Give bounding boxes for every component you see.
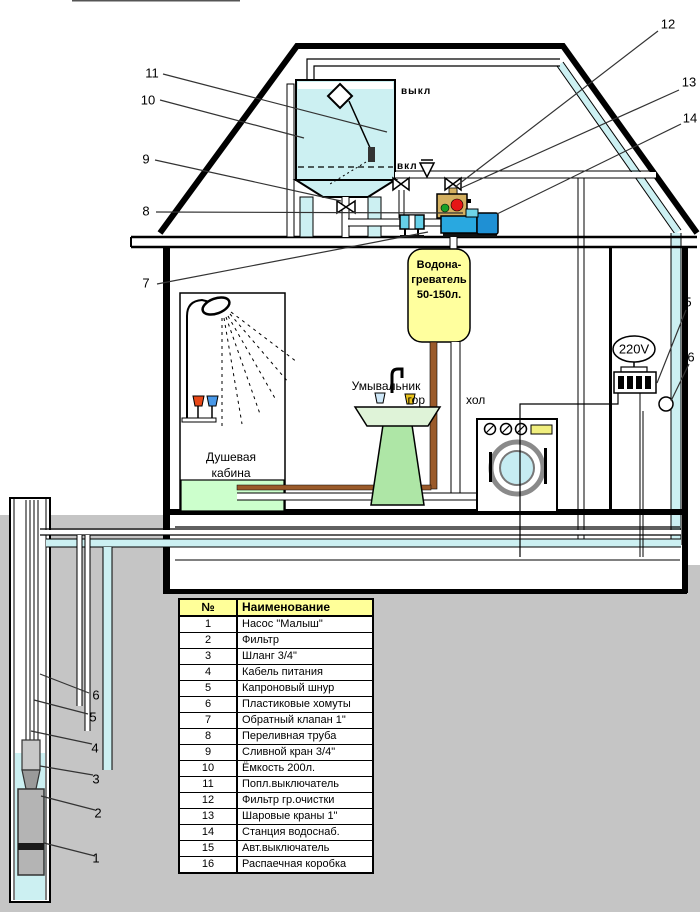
- shower-label: Душевая кабина: [191, 449, 271, 481]
- table-cell-num: 14: [179, 825, 237, 841]
- attic-floor-slab: [131, 237, 697, 247]
- table-cell-num: 12: [179, 793, 237, 809]
- table-row: 14Станция водоснаб.: [179, 825, 373, 841]
- table-cell-name: Кабель питания: [237, 665, 373, 681]
- table-row: 7Обратный клапан 1": [179, 713, 373, 729]
- table-cell-num: 1: [179, 616, 237, 633]
- table-cell-name: Насос "Малыш": [237, 616, 373, 633]
- callout-14: 14: [683, 111, 697, 126]
- table-cell-num: 8: [179, 729, 237, 745]
- table-cell-name: Попл.выключатель: [237, 777, 373, 793]
- parts-header-num: №: [179, 599, 237, 616]
- callout-9: 9: [142, 152, 149, 167]
- scan-edge-line: [72, 0, 240, 2]
- callout-13: 13: [682, 75, 696, 90]
- table-cell-num: 9: [179, 745, 237, 761]
- main-riser-pipe: [578, 177, 584, 545]
- shower-label-line1: Душевая: [191, 449, 271, 465]
- table-row: 13Шаровые краны 1": [179, 809, 373, 825]
- table-cell-name: Распаечная коробка: [237, 857, 373, 874]
- pump-filter: [22, 740, 40, 770]
- heater-label-line3: 50-150л.: [404, 288, 474, 303]
- cold-pipe-vertical: [451, 342, 460, 498]
- table-cell-num: 7: [179, 713, 237, 729]
- water-supply-scheme: 11 10 9 8 7 12 13 14 5 6 6 5 4 3 2 1 вык…: [0, 0, 700, 912]
- table-cell-name: Станция водоснаб.: [237, 825, 373, 841]
- table-cell-num: 4: [179, 665, 237, 681]
- callout-10: 10: [141, 93, 155, 108]
- table-row: 15Авт.выключатель: [179, 841, 373, 857]
- table-cell-num: 5: [179, 681, 237, 697]
- callout-4: 4: [91, 741, 98, 756]
- floor-pipes: [237, 485, 477, 500]
- junction-box: [659, 397, 673, 411]
- table-row: 5Капроновый шнур: [179, 681, 373, 697]
- callout-5: 5: [89, 710, 96, 725]
- table-row: 1Насос "Малыш": [179, 616, 373, 633]
- shower-label-line2: кабина: [191, 465, 271, 481]
- callout-2: 2: [94, 806, 101, 821]
- table-cell-name: Фильтр: [237, 633, 373, 649]
- callout-breaker: 5: [684, 295, 691, 310]
- tank-off-label: выкл: [401, 86, 431, 97]
- callout-11: 11: [145, 66, 159, 81]
- foundation-bottom: [163, 589, 687, 594]
- red-indicator: [451, 199, 463, 211]
- table-cell-num: 16: [179, 857, 237, 874]
- callout-7: 7: [142, 276, 149, 291]
- sink-cold-tap[interactable]: [375, 393, 385, 403]
- table-row: 9Сливной кран 3/4": [179, 745, 373, 761]
- table-cell-name: Пластиковые хомуты: [237, 697, 373, 713]
- green-indicator: [441, 204, 449, 212]
- tank-on-label: вкл: [397, 161, 418, 172]
- table-cell-num: 15: [179, 841, 237, 857]
- voltage-label: 220V: [619, 342, 649, 357]
- callout-8: 8: [142, 204, 149, 219]
- table-cell-name: Ёмкость 200л.: [237, 761, 373, 777]
- table-row: 12Фильтр гр.очистки: [179, 793, 373, 809]
- table-cell-name: Шаровые краны 1": [237, 809, 373, 825]
- table-cell-name: Переливная труба: [237, 729, 373, 745]
- table-row: 16Распаечная коробка: [179, 857, 373, 874]
- table-row: 6Пластиковые хомуты: [179, 697, 373, 713]
- submersible-pump: [18, 789, 44, 875]
- overflow-downpipe: [671, 233, 681, 545]
- heater-label: Водона- греватель 50-150л.: [404, 258, 474, 303]
- table-row: 4Кабель питания: [179, 665, 373, 681]
- heater-label-line2: греватель: [404, 273, 474, 288]
- washing-machine: [477, 419, 557, 512]
- parts-table: № Наименование 1Насос "Малыш" 2Фильтр 3Ш…: [178, 598, 374, 874]
- table-cell-num: 2: [179, 633, 237, 649]
- roof: [160, 46, 697, 234]
- table-cell-num: 13: [179, 809, 237, 825]
- hot-label: гор: [395, 393, 425, 407]
- heater-label-line1: Водона-: [404, 258, 474, 273]
- sink-pedestal: [371, 425, 424, 505]
- table-cell-num: 10: [179, 761, 237, 777]
- hot-tap[interactable]: [193, 396, 204, 406]
- table-cell-name: Сливной кран 3/4": [237, 745, 373, 761]
- sink-label: Умывальник: [345, 379, 427, 393]
- leader-7: [157, 232, 428, 284]
- callout-12: 12: [661, 17, 675, 32]
- table-cell-name: Авт.выключатель: [237, 841, 373, 857]
- mixer-shelf: [182, 418, 216, 422]
- sink-bowl: [355, 407, 440, 426]
- callout-6: 6: [92, 688, 99, 703]
- table-cell-name: Шланг 3/4": [237, 649, 373, 665]
- table-row: 2Фильтр: [179, 633, 373, 649]
- cold-pipe-horizontal: [237, 493, 477, 500]
- table-cell-name: Обратный клапан 1": [237, 713, 373, 729]
- table-row: 3Шланг 3/4": [179, 649, 373, 665]
- table-cell-name: Капроновый шнур: [237, 681, 373, 697]
- table-cell-num: 6: [179, 697, 237, 713]
- interior-wall: [609, 247, 612, 509]
- table-cell-num: 11: [179, 777, 237, 793]
- cold-tap[interactable]: [207, 396, 218, 406]
- callout-1: 1: [92, 851, 99, 866]
- callout-3: 3: [92, 772, 99, 787]
- callout-junction: 6: [687, 350, 694, 365]
- table-cell-num: 3: [179, 649, 237, 665]
- table-row: 8Переливная труба: [179, 729, 373, 745]
- parts-header-name: Наименование: [237, 599, 373, 616]
- table-row: 11Попл.выключатель: [179, 777, 373, 793]
- table-cell-name: Фильтр гр.очистки: [237, 793, 373, 809]
- parts-header-row: № Наименование: [179, 599, 373, 616]
- cold-label: хол: [466, 393, 485, 407]
- washer-display: [531, 425, 552, 434]
- table-row: 10Ёмкость 200л.: [179, 761, 373, 777]
- well: [10, 498, 50, 902]
